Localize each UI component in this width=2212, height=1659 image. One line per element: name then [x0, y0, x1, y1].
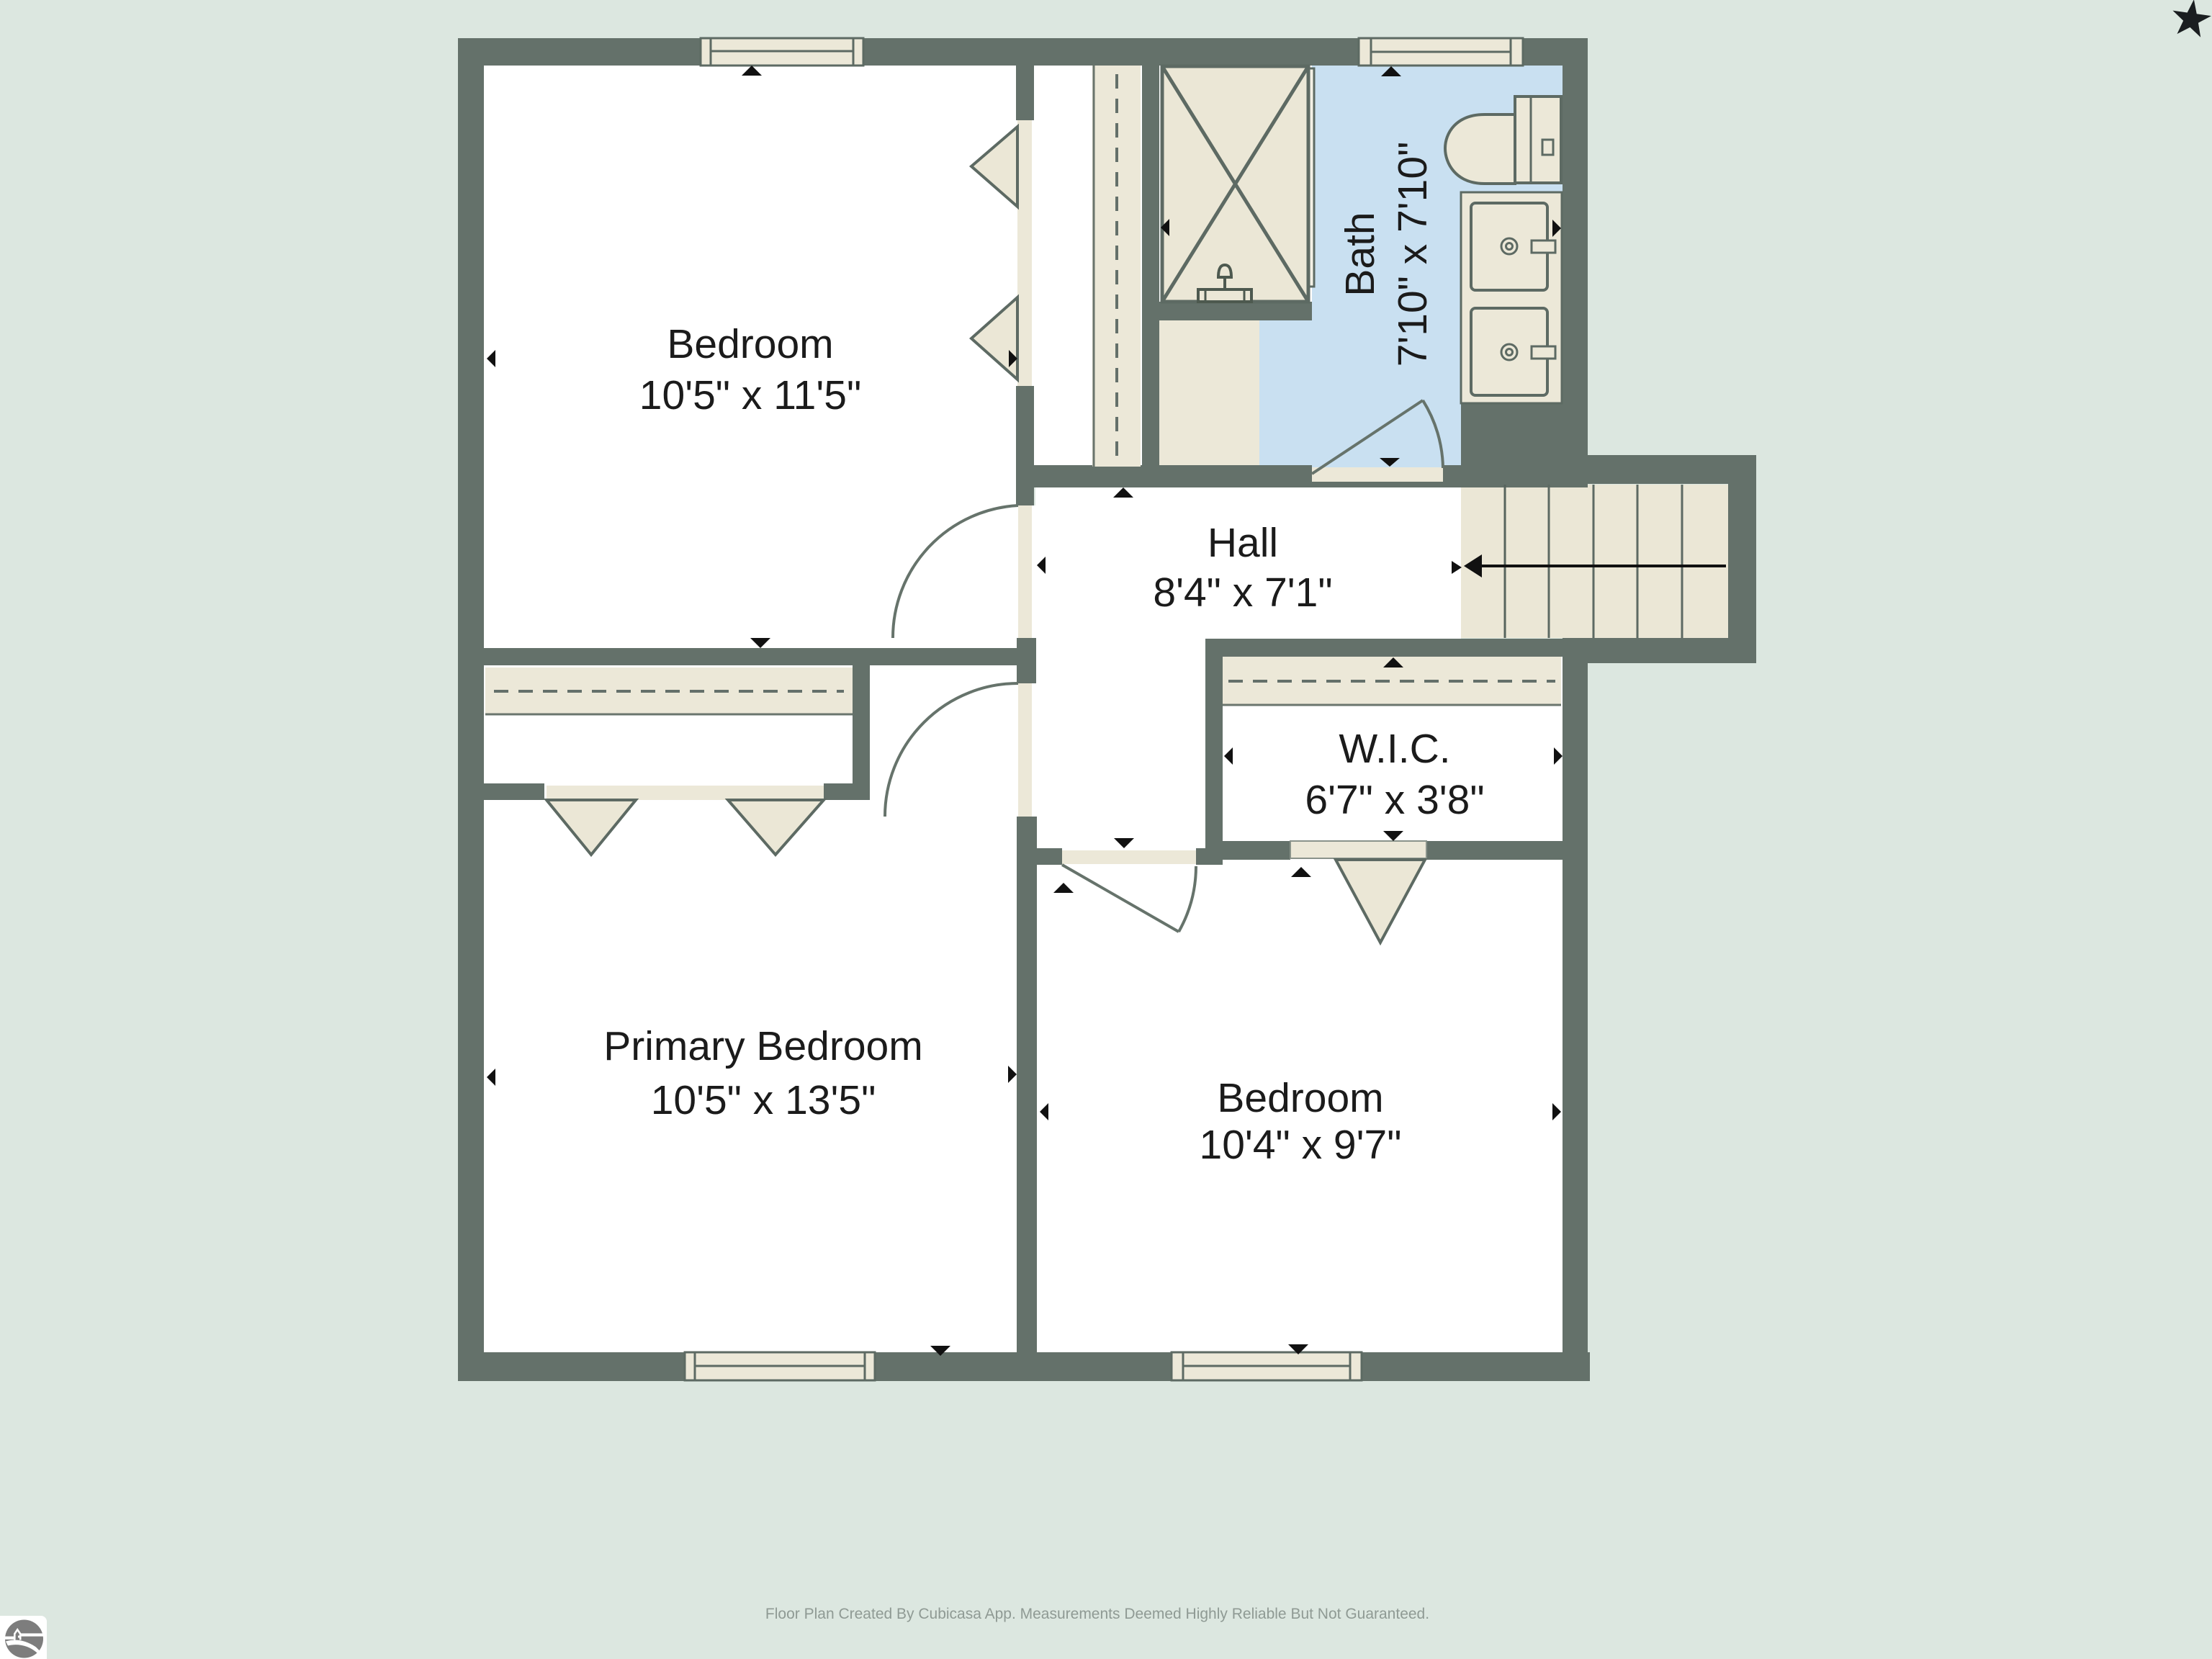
svg-text:10'4" x 9'7": 10'4" x 9'7": [1200, 1122, 1402, 1168]
svg-text:W.I.C.: W.I.C.: [1339, 726, 1450, 772]
svg-text:Bath: Bath: [1337, 212, 1383, 296]
svg-text:Primary Bedroom: Primary Bedroom: [603, 1023, 922, 1069]
svg-text:Floor Plan Created By Cubicasa: Floor Plan Created By Cubicasa App. Meas…: [765, 1606, 1429, 1622]
svg-text:Hall: Hall: [1208, 520, 1278, 566]
svg-text:6'7" x 3'8": 6'7" x 3'8": [1305, 777, 1484, 823]
svg-text:10'5" x 13'5": 10'5" x 13'5": [651, 1077, 876, 1123]
svg-text:8'4" x 7'1": 8'4" x 7'1": [1153, 570, 1332, 616]
svg-text:Bedroom: Bedroom: [667, 321, 833, 367]
svg-text:10'5" x 11'5": 10'5" x 11'5": [639, 372, 861, 418]
svg-text:7'10" x 7'10": 7'10" x 7'10": [1390, 142, 1436, 367]
svg-text:Bedroom: Bedroom: [1217, 1075, 1383, 1121]
